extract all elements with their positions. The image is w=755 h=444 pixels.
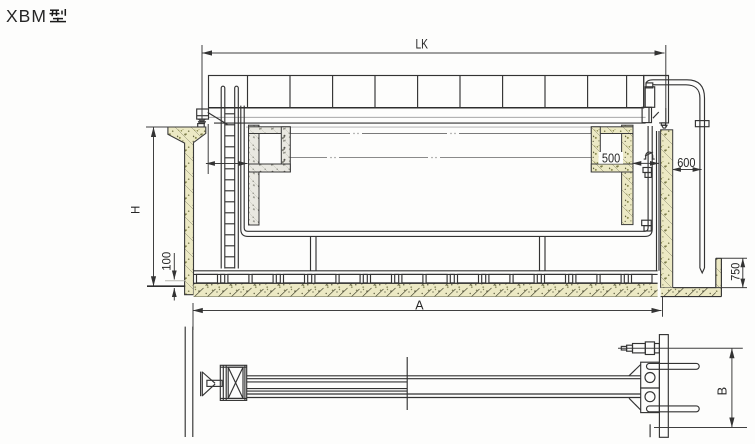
- svg-text:XBM: XBM: [6, 6, 47, 26]
- svg-text:H: H: [131, 206, 143, 214]
- svg-text:100: 100: [159, 251, 173, 270]
- svg-text:600: 600: [677, 155, 695, 170]
- svg-text:A: A: [415, 298, 424, 312]
- svg-text:B: B: [715, 387, 730, 396]
- svg-text:500: 500: [602, 151, 620, 166]
- svg-text:750: 750: [728, 263, 742, 281]
- svg-text:LK: LK: [416, 35, 429, 51]
